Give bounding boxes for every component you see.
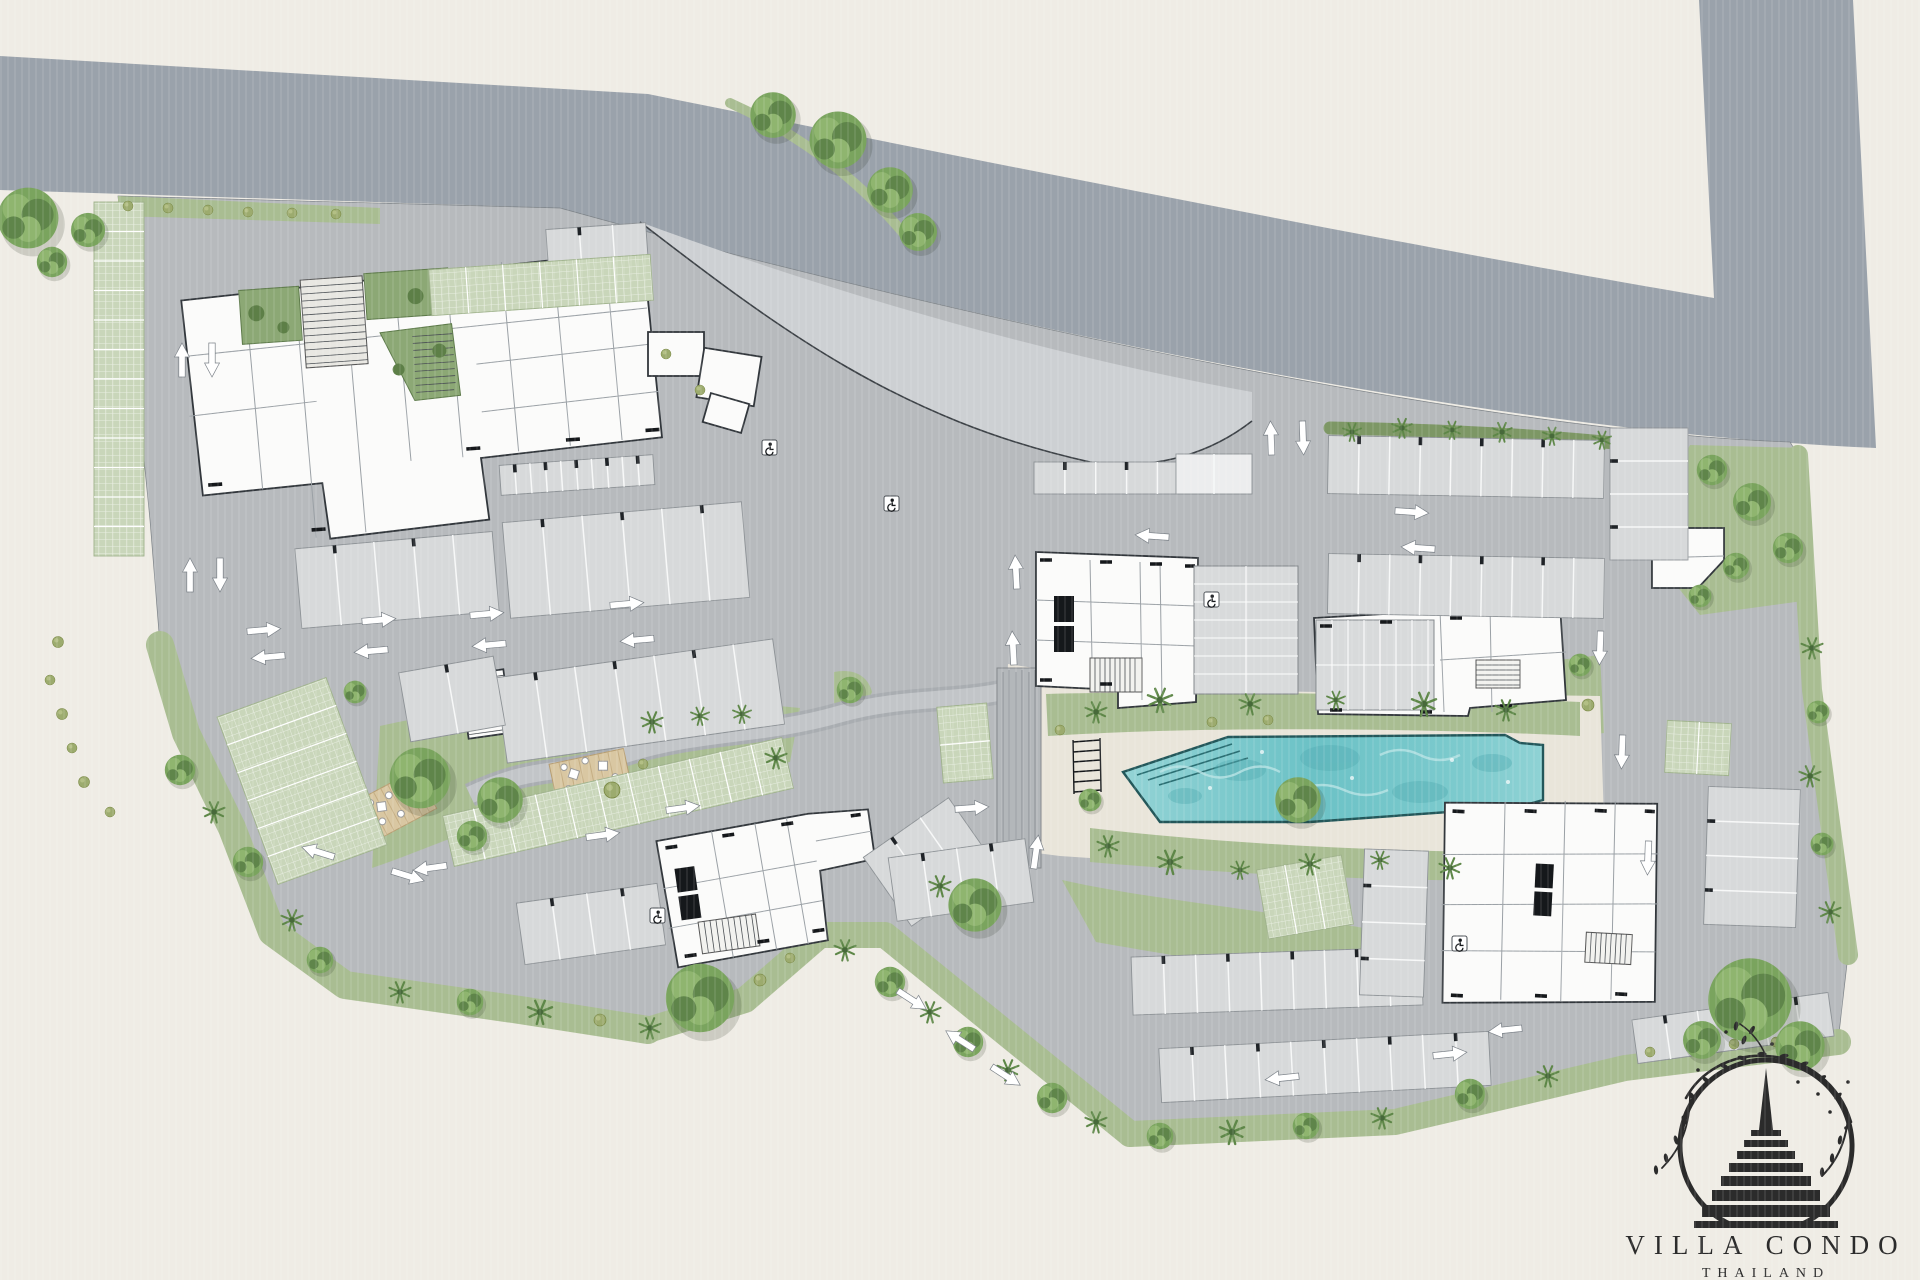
shrub-icon <box>45 675 55 685</box>
shrub-icon <box>1582 699 1594 711</box>
shrub-icon <box>785 953 795 963</box>
parking-stall-row <box>295 532 499 629</box>
shrub-icon <box>604 782 620 798</box>
logo-subtitle: THAILAND <box>1702 1266 1830 1280</box>
shrub-icon <box>1645 1047 1655 1057</box>
shrub-icon <box>1055 725 1065 735</box>
pebble-walk <box>997 668 1041 868</box>
shrub-icon <box>331 209 341 219</box>
logo-chedi <box>1694 1068 1838 1228</box>
parking-stall-row <box>1328 436 1605 499</box>
shrub-icon <box>105 807 115 817</box>
parking-stall-row <box>1610 428 1688 560</box>
grass-paver-parking <box>937 703 993 783</box>
tree-icon <box>37 247 71 281</box>
shrub-icon <box>203 205 213 215</box>
carport-center <box>1194 566 1298 694</box>
site-plan-stage: VILLA CONDO THAILAND <box>0 0 1920 1280</box>
shrub-icon <box>1263 715 1273 725</box>
wheelchair-icon <box>1204 592 1219 607</box>
grass-paver-parking <box>94 202 144 556</box>
shrub-icon <box>79 777 90 788</box>
building-tower-a <box>1036 552 1198 708</box>
shrub-icon <box>661 349 671 359</box>
shrub-icon <box>638 759 648 769</box>
building-tower-d <box>1434 793 1665 1014</box>
shrub-icon <box>57 709 68 720</box>
parking-stall-row <box>1176 454 1252 494</box>
shrub-icon <box>243 207 253 217</box>
shrub-icon <box>287 208 297 218</box>
shrub-icon <box>163 203 173 213</box>
parking-stall-row <box>1704 786 1801 927</box>
parking-stall-row <box>1327 554 1604 619</box>
grass-paver-parking <box>1665 720 1732 775</box>
shrub-icon <box>754 974 766 986</box>
wheelchair-icon <box>1452 936 1467 951</box>
shrub-icon <box>594 1014 606 1026</box>
tree-icon <box>0 188 65 257</box>
logo-title: VILLA CONDO <box>1625 1230 1906 1260</box>
wheelchair-icon <box>884 496 899 511</box>
parking-stall-row <box>1359 849 1428 997</box>
building-tower-b <box>1314 604 1566 716</box>
site-plan-drawing: VILLA CONDO THAILAND <box>0 0 1920 1280</box>
shrub-icon <box>53 637 64 648</box>
wheelchair-icon <box>762 440 777 455</box>
shrub-icon <box>123 201 133 211</box>
wheelchair-icon <box>650 908 665 923</box>
shrub-icon <box>695 385 705 395</box>
shrub-icon <box>67 743 77 753</box>
shrub-icon <box>1207 717 1217 727</box>
grass-paver-parking <box>1257 855 1354 939</box>
